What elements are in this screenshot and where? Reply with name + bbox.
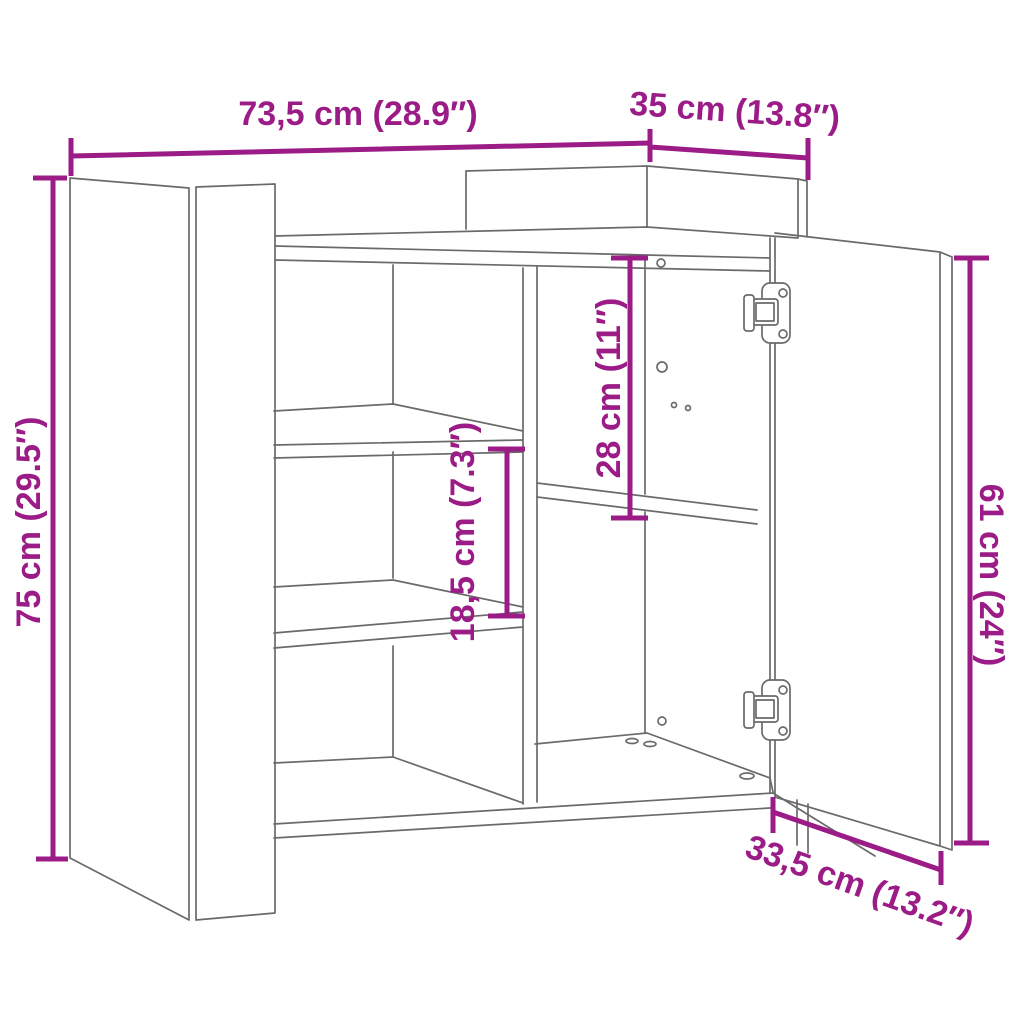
hinge-top-screw-upper xyxy=(779,289,787,297)
hinge-bottom-arm-inner xyxy=(756,700,774,718)
width-dimension-line xyxy=(71,138,650,176)
cabinet-door-open xyxy=(775,233,952,850)
depth-dimension-label: 35 cm (13.8″) xyxy=(628,85,841,138)
hinge-bottom-screw-upper xyxy=(779,686,787,694)
shelf-spacing-dimension-label: 18,5 cm (7.3″) xyxy=(444,422,482,642)
screw-hole xyxy=(657,362,667,372)
bottom-fitting-hole xyxy=(740,773,754,779)
shelf-upper-left xyxy=(274,404,523,458)
cabinet-left-side-panel xyxy=(70,178,275,920)
screw-hole xyxy=(658,717,666,725)
hinge-bottom xyxy=(744,680,790,740)
bottom-fitting-hole xyxy=(644,742,656,747)
bottom-fitting-hole xyxy=(626,739,638,744)
hinge-bottom-screw-lower xyxy=(779,727,787,735)
hinge-bottom-cup xyxy=(744,692,754,728)
width-dimension-label: 73,5 cm (28.9″) xyxy=(238,95,477,133)
hinge-top-cup xyxy=(744,295,754,331)
hinge-top xyxy=(744,283,790,343)
sideboard-dimension-diagram: 73,5 cm (28.9″) 35 cm (13.8″) 75 cm (29.… xyxy=(0,0,1024,1024)
door-outline xyxy=(775,233,952,850)
hinge-top-screw-lower xyxy=(779,330,787,338)
divider-lines xyxy=(523,267,537,804)
shelf-spacing-dimension-line xyxy=(488,449,525,616)
shelf-upper-left-lines xyxy=(274,404,523,458)
cabinet-top-panel xyxy=(275,227,798,271)
shelf-lower-left-lines xyxy=(274,580,523,648)
top-panel-lines xyxy=(275,227,798,271)
dimension-shelf-spacing xyxy=(488,449,525,616)
screw-hole xyxy=(672,403,677,408)
door-height-dimension-label: 61 cm (24″) xyxy=(972,484,1010,667)
dimension-diagram-page: 73,5 cm (28.9″) 35 cm (13.8″) 75 cm (29.… xyxy=(0,0,1024,1024)
shelf-lower-left xyxy=(274,580,523,648)
screw-hole xyxy=(657,259,665,267)
height-dimension-label: 75 cm (29.5″) xyxy=(10,417,48,628)
riser-lines xyxy=(466,166,807,237)
hinge-top-arm-inner xyxy=(756,303,774,321)
center-divider xyxy=(523,267,537,804)
upper-compartment-dimension-label: 28 cm (11″) xyxy=(590,298,628,479)
dimension-width xyxy=(71,138,650,176)
door-width-dimension-label: 33,5 cm (13.2″) xyxy=(741,828,979,944)
left-panel-outline xyxy=(70,178,275,920)
screw-hole xyxy=(686,406,691,411)
top-back-riser xyxy=(466,166,807,237)
